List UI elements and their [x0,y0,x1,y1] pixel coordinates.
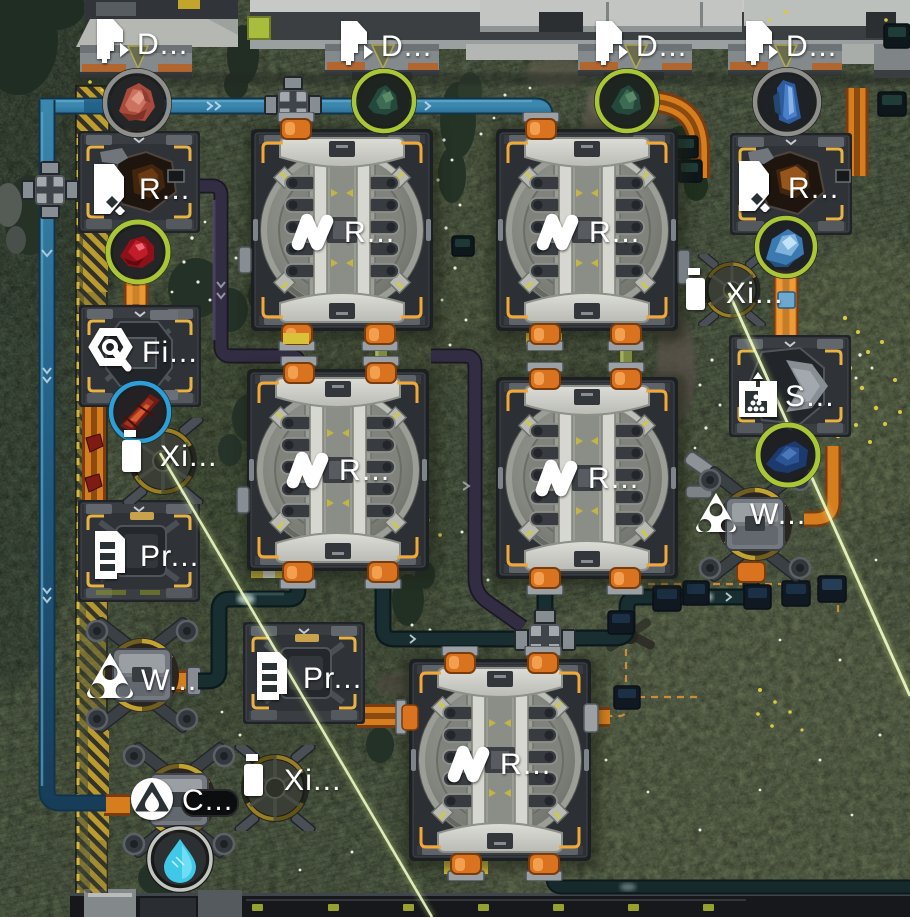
svg-text:R...: R... [588,462,639,495]
svg-text:R...: R... [139,173,190,206]
svg-text:R...: R... [788,172,839,205]
svg-text:R...: R... [589,216,640,249]
svg-text:D...: D... [381,30,432,63]
svg-text:S...: S... [785,380,835,413]
svg-text:R...: R... [344,216,395,249]
svg-text:Fi...: Fi... [142,336,198,369]
svg-text:Xi...: Xi... [726,277,784,310]
svg-text:D...: D... [786,30,837,63]
svg-text:Pr...: Pr... [140,540,199,573]
svg-text:R...: R... [500,748,551,781]
svg-text:W...: W... [750,498,806,531]
svg-text:C...: C... [182,784,233,817]
svg-text:D...: D... [636,30,687,63]
svg-text:Pr...: Pr... [303,662,362,695]
svg-text:R...: R... [339,454,390,487]
svg-text:Xi...: Xi... [160,440,218,473]
svg-text:D...: D... [137,28,188,61]
svg-text:Xi...: Xi... [284,764,342,797]
svg-text:W...: W... [141,664,197,697]
